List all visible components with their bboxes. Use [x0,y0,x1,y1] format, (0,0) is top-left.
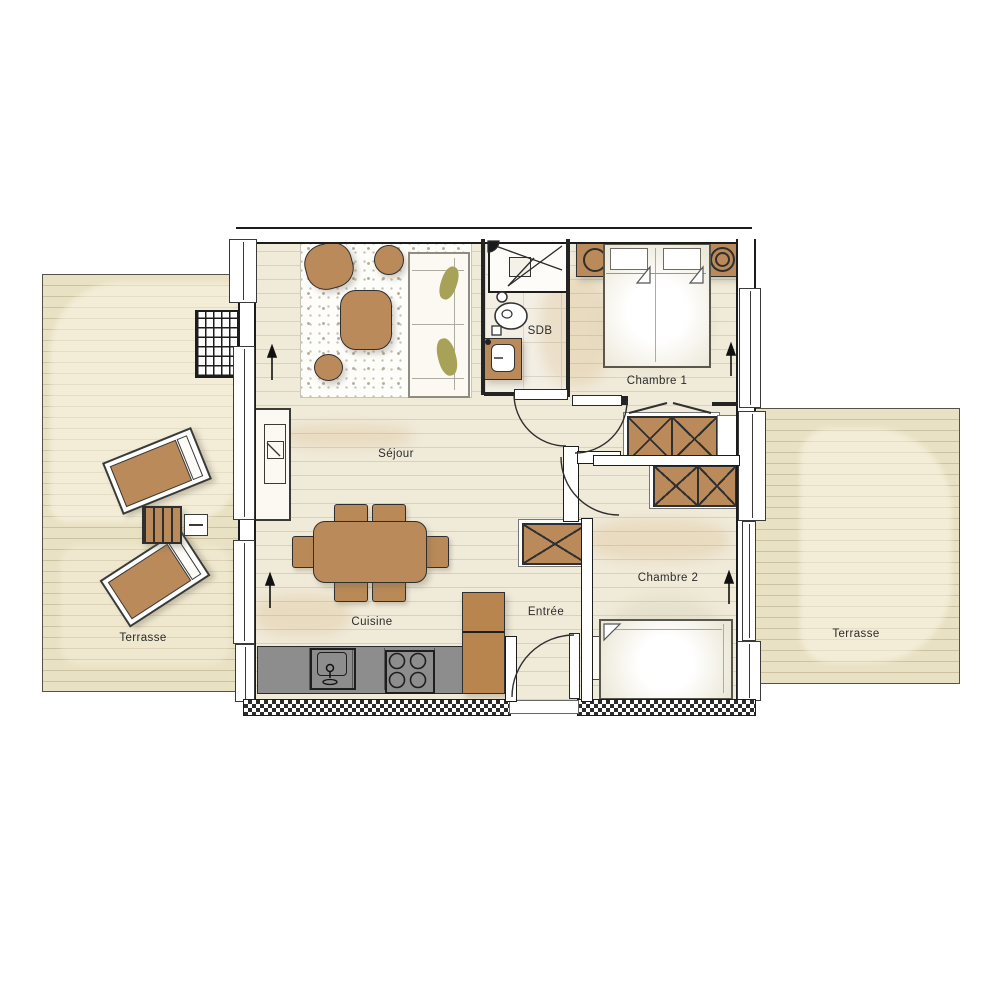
shower [488,241,570,293]
floor-plan: Séjour Cuisine Entrée SDB Chambre 1 Cham… [0,0,1000,1000]
wall-living-sdb [481,239,485,395]
slatted-table [142,506,182,544]
wall-top [236,227,752,244]
door-leaf-chambre1 [572,395,622,406]
room-label-sejour: Séjour [378,448,414,460]
terrace-door-right [737,641,761,701]
pouf-round [374,245,404,275]
wall-sdb-bottom [484,392,514,396]
window-left-middle [233,346,255,520]
dining-chair-bottom-1 [334,580,368,602]
window-left-top-mullion [243,242,244,300]
entrance-threshold [509,700,579,714]
room-label-chambre1: Chambre 1 [627,375,688,387]
sofa [408,252,470,398]
sink-basin [317,652,347,676]
wall-bottom-hatch-right [577,699,756,716]
dining-chair-right [425,536,449,568]
bed1-center-divider [655,248,656,362]
room-label-chambre2: Chambre 2 [638,572,699,584]
lamp-right-inner [715,252,730,267]
sofa-armrest-bottom [412,378,464,379]
coffee-table [340,290,392,350]
bed-chambre1 [603,243,711,368]
window-left-lower-mullion [244,543,245,641]
closet-chambre2-left [653,465,699,507]
window-chambre1 [739,288,761,408]
dining-chair-bottom-2 [372,580,406,602]
closet-chambre2-right [697,465,737,507]
door-leaf-sdb [514,389,568,400]
bed2-duvet-line [604,629,722,630]
bed1-pillow-right [663,248,701,270]
window-chambre2-mullion [749,524,750,638]
window-left-top [229,239,257,303]
door-leaf-entrance [569,633,580,699]
floor-tint-2 [282,425,412,447]
tall-cabinet-fridge [462,592,505,694]
room-label-cuisine: Cuisine [351,616,392,628]
sofa-seat-divider [412,324,464,325]
wall-entree-left [505,636,517,702]
cooktop [385,650,435,694]
bed-chambre2 [599,619,733,700]
shower-drain-box [509,257,531,277]
terrace-door-left-mullion [245,647,246,699]
wall-bottom-hatch-left [243,699,511,716]
pouf-small [314,354,343,381]
washbasin-cabinet [484,338,522,380]
wall-sdb-chambre1 [566,239,570,397]
wall-entree-chambre2 [581,518,593,702]
room-label-terrasse-left: Terrasse [119,632,166,644]
kitchen-sink-unit [310,648,356,690]
room-label-entree: Entrée [528,606,564,618]
bed1-duvet-line [606,273,706,274]
window-dressing-mullion [752,414,753,518]
wall-chambre2-top [593,455,740,466]
washbasin-bowl [491,344,515,372]
bed2-headboard-line [723,624,724,693]
terrace-door-right-mullion [749,644,750,698]
fridge-divider [463,631,504,633]
room-label-terrasse-right: Terrasse [832,628,879,640]
wall-chambre1-bottom [712,402,738,406]
sofa-cushion-olive-2 [434,336,461,377]
room-label-sdb: SDB [528,325,553,337]
dining-table [313,521,427,583]
window-chambre1-mullion [750,291,751,405]
window-dressing [738,411,766,521]
floor-tint-4 [588,520,728,560]
terrace-door-left [235,644,255,702]
bed1-pillow-left [610,248,648,270]
window-left-lower [233,540,255,644]
window-left-middle-mullion [244,349,245,517]
entry-storage [522,523,588,565]
side-table-detail [189,524,203,526]
side-table [184,514,208,536]
tv-unit-box [267,441,284,459]
window-chambre2 [742,521,756,641]
